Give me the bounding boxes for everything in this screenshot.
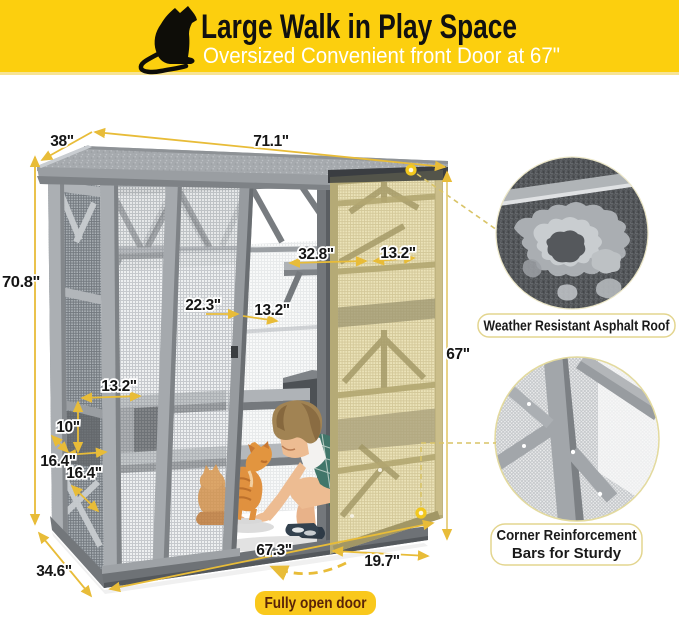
- svg-text:Bars for Sturdy: Bars for Sturdy: [512, 545, 622, 562]
- svg-text:Oversized Convenient front Doo: Oversized Convenient front Door at 67": [203, 43, 560, 68]
- svg-text:32.8": 32.8": [298, 246, 334, 263]
- svg-text:Large Walk in Play Space: Large Walk in Play Space: [201, 8, 517, 46]
- svg-text:13.2": 13.2": [380, 245, 416, 262]
- svg-text:71.1": 71.1": [253, 133, 289, 150]
- svg-text:70.8": 70.8": [2, 274, 40, 291]
- svg-text:13.2": 13.2": [101, 378, 137, 395]
- svg-text:67.3": 67.3": [256, 542, 292, 559]
- svg-text:Weather Resistant Asphalt Roof: Weather Resistant Asphalt Roof: [484, 318, 671, 335]
- svg-text:Corner Reinforcement: Corner Reinforcement: [497, 527, 637, 544]
- svg-text:22.3": 22.3": [185, 297, 221, 314]
- svg-text:10": 10": [56, 419, 79, 436]
- svg-text:67": 67": [446, 346, 469, 363]
- svg-text:19.7": 19.7": [364, 553, 400, 570]
- svg-text:34.6": 34.6": [36, 563, 72, 580]
- svg-text:16.4": 16.4": [66, 465, 102, 482]
- svg-text:38": 38": [50, 133, 73, 150]
- svg-text:13.2": 13.2": [254, 302, 290, 319]
- svg-text:Fully open door: Fully open door: [265, 595, 367, 612]
